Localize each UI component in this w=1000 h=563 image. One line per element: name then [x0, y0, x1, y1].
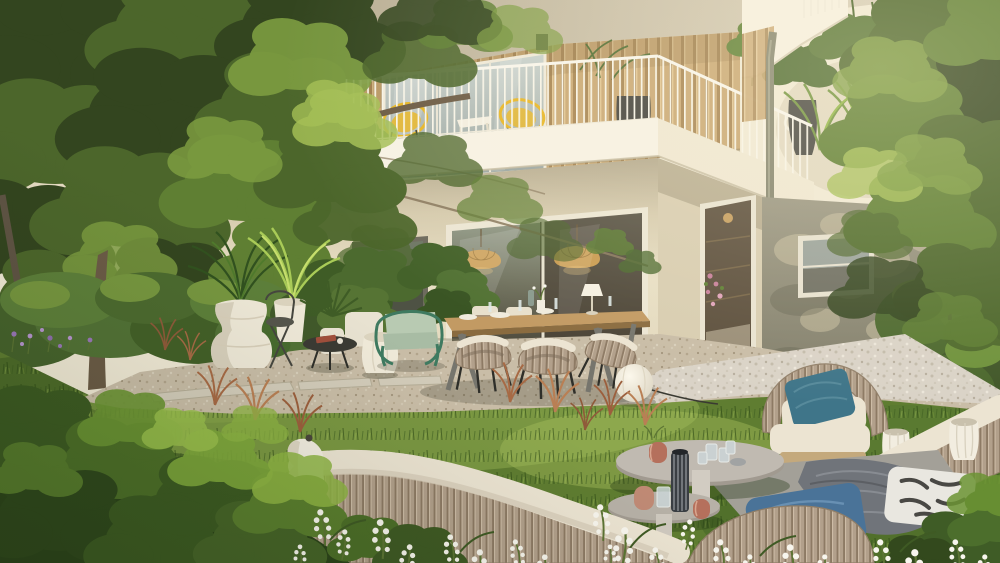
render-image: [0, 0, 1000, 563]
vignette-overlay: [0, 0, 1000, 563]
garden-render-canvas: [0, 0, 1000, 563]
